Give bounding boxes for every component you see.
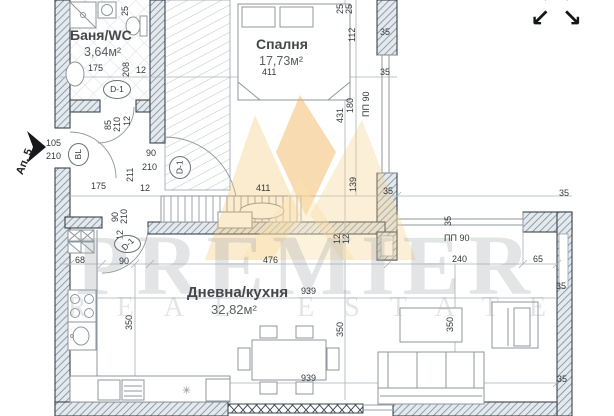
dim-label: 210 xyxy=(120,209,129,224)
dim-label: 105 xyxy=(46,139,61,148)
dim-label: 350 xyxy=(446,317,455,332)
dim-label: 431 xyxy=(336,108,345,123)
room-name-bathroom: Баня/WC xyxy=(70,28,132,42)
dim-label: 35 xyxy=(557,375,567,384)
dim-label: 35 xyxy=(556,282,566,291)
dim-label: 68 xyxy=(75,256,85,265)
dim-label: ПП 90 xyxy=(362,92,371,117)
door-marker-d-1: D-1 xyxy=(103,80,131,99)
dim-label: 25 xyxy=(345,4,354,14)
dim-label: 139 xyxy=(349,177,358,192)
door-marker-d-1: D-1 xyxy=(114,235,141,253)
dim-label: 476 xyxy=(263,256,278,265)
dim-label: 35 xyxy=(444,216,453,226)
door-marker-d-1: D-1 xyxy=(169,156,191,179)
fullscreen-arrow-glyph: ↙ xyxy=(527,7,554,31)
dim-label: 90 xyxy=(146,149,156,158)
dim-label: 350 xyxy=(125,315,134,330)
door-marker-bl: BL xyxy=(68,143,89,166)
dim-label: 350 xyxy=(336,322,345,337)
door-marker-label: BL xyxy=(74,149,83,159)
dim-label: 240 xyxy=(452,255,467,264)
dim-label: 175 xyxy=(88,64,103,73)
dim-label: 939 xyxy=(301,374,316,383)
dim-label: ПП 90 xyxy=(444,234,469,243)
dim-label: 35 xyxy=(380,68,390,77)
door-marker-label: D-1 xyxy=(110,85,124,94)
labels-layer: Баня/WC 3,64м² Спалня 17,73м² Дневна/кух… xyxy=(0,0,614,416)
apartment-entry-label: Ап. 5 xyxy=(14,147,35,176)
light-symbol: ✳ xyxy=(182,386,191,397)
room-area-bedroom: 17,73м² xyxy=(259,55,303,68)
dim-label: 35 xyxy=(559,189,569,198)
door-marker-label: D-1 xyxy=(120,236,136,252)
dim-label: 35 xyxy=(380,28,390,37)
dim-label: 12 xyxy=(136,66,146,75)
dim-label: 210 xyxy=(113,117,122,132)
fullscreen-icon[interactable]: ↖↗↙↘ xyxy=(527,0,585,30)
room-name-living: Дневна/кухня xyxy=(187,285,288,300)
room-area-living: 32,82м² xyxy=(211,303,257,316)
door-marker-label: D-1 xyxy=(176,161,185,175)
floorplan-viewer: PREMIER REAL ESTATE Баня/WC 3,64м² Спалн… xyxy=(0,0,614,416)
dim-label: 210 xyxy=(142,163,157,172)
dim-label: 112 xyxy=(348,28,357,42)
dim-label: 35 xyxy=(383,187,393,196)
dim-label: 65 xyxy=(533,255,543,264)
dim-label: 208 xyxy=(122,62,131,77)
dim-label: 12 xyxy=(342,234,351,244)
room-name-bedroom: Спалня xyxy=(256,37,308,51)
dim-label: 175 xyxy=(91,182,106,191)
dim-label: 211 xyxy=(126,168,135,182)
dim-label: 411 xyxy=(262,68,276,77)
dim-label: 180 xyxy=(346,98,355,113)
dim-label: 210 xyxy=(46,152,61,161)
dim-label: 12 xyxy=(140,184,150,193)
room-area-bathroom: 3,64м² xyxy=(84,46,121,59)
dim-label: 939 xyxy=(301,287,316,296)
dim-label: 12 xyxy=(123,116,132,126)
dim-label: 90 xyxy=(119,257,129,266)
fullscreen-arrow-glyph: ↘ xyxy=(559,7,586,31)
dim-label: 25 xyxy=(121,6,130,16)
dim-label: 411 xyxy=(256,184,270,193)
